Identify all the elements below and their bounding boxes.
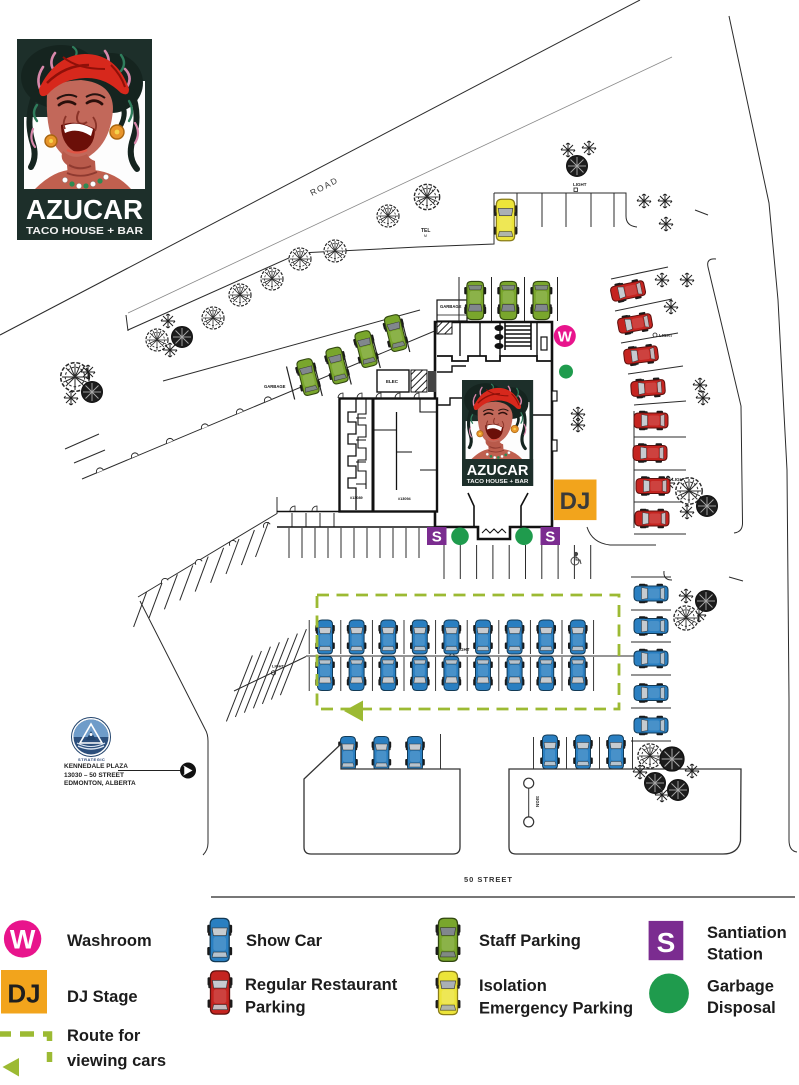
svg-text:GARBAGE: GARBAGE bbox=[264, 384, 286, 389]
svg-text:viewing cars: viewing cars bbox=[67, 1052, 166, 1070]
svg-text:Garbage: Garbage bbox=[707, 978, 774, 996]
svg-text:Parking: Parking bbox=[245, 999, 306, 1017]
svg-text:LIGHT: LIGHT bbox=[573, 182, 587, 187]
svg-text:S: S bbox=[432, 529, 442, 546]
svg-text:ROAD: ROAD bbox=[308, 175, 340, 198]
svg-text:S: S bbox=[545, 529, 555, 546]
svg-text:DJ: DJ bbox=[7, 979, 40, 1009]
svg-text:Disposal: Disposal bbox=[707, 999, 776, 1017]
svg-text:S: S bbox=[657, 927, 676, 958]
svg-text:50 STREET: 50 STREET bbox=[464, 875, 513, 884]
svg-text:Santiation: Santiation bbox=[707, 924, 787, 942]
svg-text:DJ: DJ bbox=[560, 488, 591, 515]
svg-text:Route for: Route for bbox=[67, 1027, 141, 1045]
svg-text:13030 – 50 STREET: 13030 – 50 STREET bbox=[64, 772, 124, 779]
svg-text:Show Car: Show Car bbox=[246, 932, 323, 950]
svg-text:Staff Parking: Staff Parking bbox=[479, 932, 581, 950]
svg-text:Regular Restaurant: Regular Restaurant bbox=[245, 976, 398, 994]
svg-text:GARBAGE: GARBAGE bbox=[440, 304, 462, 309]
svg-text:SIGN: SIGN bbox=[535, 796, 540, 807]
svg-text:Washroom: Washroom bbox=[67, 932, 152, 950]
svg-text:Station: Station bbox=[707, 946, 763, 964]
svg-text:#13094: #13094 bbox=[398, 497, 412, 501]
svg-text:Emergency Parking: Emergency Parking bbox=[479, 1000, 633, 1018]
svg-text:EDMONTON, ALBERTA: EDMONTON, ALBERTA bbox=[64, 780, 136, 787]
svg-text:W: W bbox=[558, 329, 573, 346]
svg-text:LIGHT: LIGHT bbox=[272, 664, 285, 669]
svg-text:ELEC: ELEC bbox=[386, 379, 399, 384]
svg-text:W: W bbox=[10, 925, 36, 955]
svg-text:DJ Stage: DJ Stage bbox=[67, 988, 138, 1006]
svg-text:STRATEGIC: STRATEGIC bbox=[78, 757, 105, 762]
svg-text:M: M bbox=[424, 234, 427, 238]
svg-text:#13089: #13089 bbox=[350, 496, 363, 500]
svg-text:LIGHT: LIGHT bbox=[659, 333, 673, 338]
svg-text:KENNEDALE PLAZA: KENNEDALE PLAZA bbox=[64, 763, 128, 770]
svg-text:Isolation: Isolation bbox=[479, 977, 547, 995]
